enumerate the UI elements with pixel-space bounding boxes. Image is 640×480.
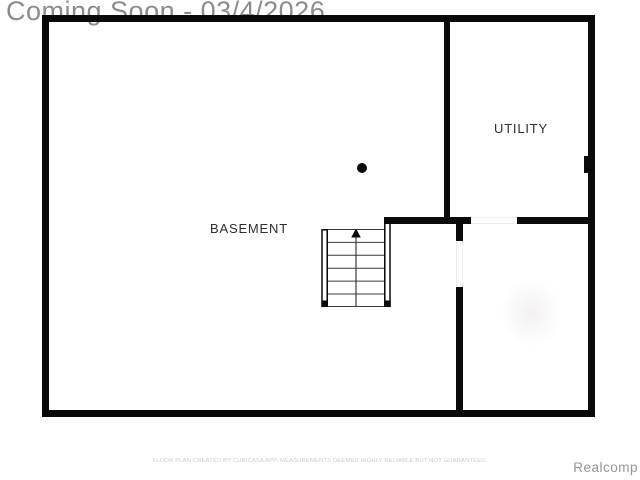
realcomp-brand: Realcomp	[573, 460, 638, 475]
stair-right-stringer	[385, 222, 390, 306]
support-column-icon	[357, 163, 367, 173]
wall-lower-room-left	[456, 287, 463, 410]
floor-plan-disclaimer: FLOOR PLAN CREATED BY CUBICASA APP. MEAS…	[134, 457, 505, 463]
door-opening-utility	[471, 217, 517, 224]
floor-plan-page: Coming Soon - 03/4/2026 BASEMENT UTI	[0, 0, 640, 480]
stair-right-post	[384, 301, 391, 308]
faint-watermark-smudge	[500, 279, 562, 347]
stair-left-post	[322, 301, 329, 308]
wall-exterior-right	[588, 15, 595, 417]
room-label-basement: BASEMENT	[199, 221, 299, 236]
staircase	[321, 221, 391, 309]
wall-exterior-top	[42, 15, 595, 22]
wall-utility-bottom-right-segment	[517, 217, 588, 224]
wall-utility-left	[444, 20, 450, 218]
stair-left-stringer	[322, 230, 327, 306]
electrical-panel-icon	[584, 156, 589, 173]
coming-soon-watermark: Coming Soon - 03/4/2026	[6, 0, 325, 27]
room-label-utility: UTILITY	[481, 121, 561, 136]
wall-lower-room-stub	[456, 222, 463, 241]
wall-exterior-bottom	[42, 410, 595, 417]
wall-exterior-left	[42, 15, 49, 417]
door-opening-lower-room	[456, 241, 463, 287]
